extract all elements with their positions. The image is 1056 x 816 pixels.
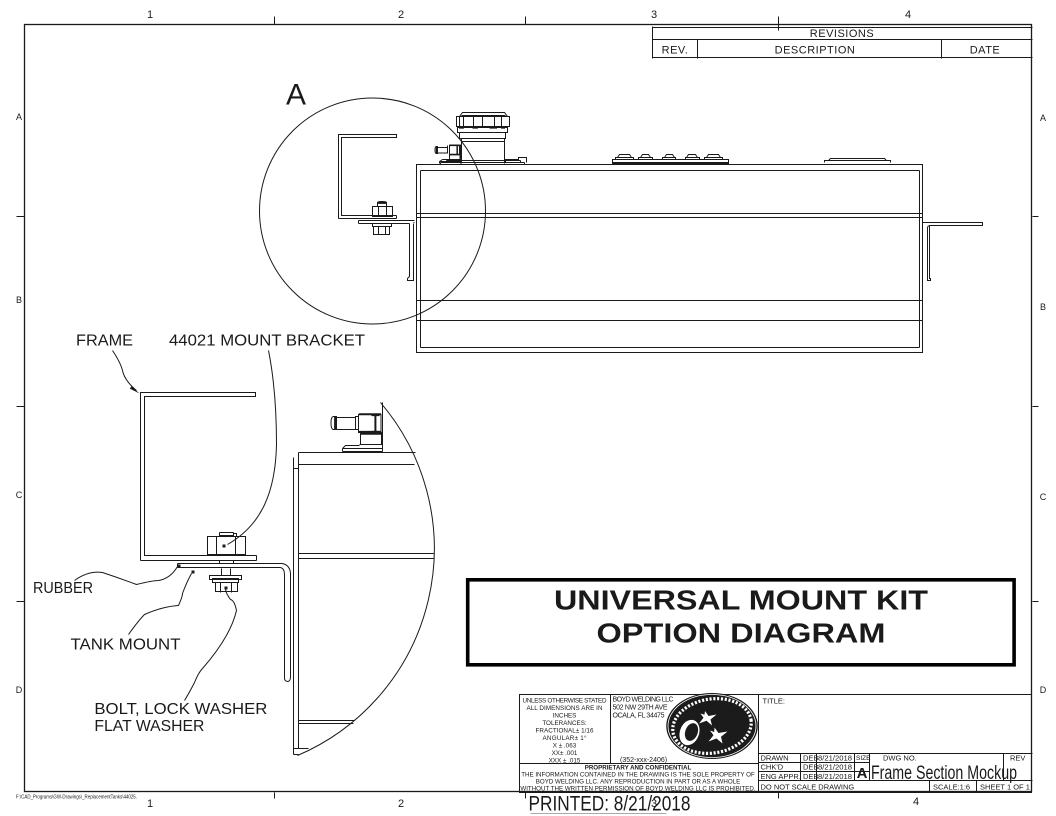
- svg-text:DESCRIPTION: DESCRIPTION: [775, 45, 856, 57]
- svg-text:B: B: [16, 295, 22, 305]
- svg-text:UNLESS OTHERWISE STATED: UNLESS OTHERWISE STATED: [523, 698, 607, 705]
- svg-text:A: A: [286, 79, 306, 112]
- svg-text:OCALA, FL 34475: OCALA, FL 34475: [613, 713, 665, 720]
- svg-text:DWG NO.: DWG NO.: [883, 754, 917, 763]
- svg-text:DATE: DATE: [970, 45, 1001, 57]
- svg-text:DRAWN: DRAWN: [761, 754, 789, 763]
- svg-text:OPTION DIAGRAM: OPTION DIAGRAM: [597, 618, 886, 649]
- svg-text:SCALE:1:6: SCALE:1:6: [933, 783, 970, 792]
- svg-text:BOLT, LOCK WASHER: BOLT, LOCK WASHER: [94, 701, 267, 718]
- svg-text:DEB: DEB: [803, 763, 818, 772]
- svg-text:XX± .001: XX± .001: [552, 750, 578, 757]
- svg-text:PROPRIETARY AND CONFIDENTIAL: PROPRIETARY AND CONFIDENTIAL: [585, 765, 692, 772]
- svg-text:Frame Section Mockup: Frame Section Mockup: [871, 763, 1017, 784]
- svg-text:2: 2: [398, 9, 404, 21]
- svg-text:DEB: DEB: [803, 754, 818, 763]
- svg-text:F:\CAD_Programs\GW-Drawings\_R: F:\CAD_Programs\GW-Drawings\_Replacement…: [16, 795, 137, 801]
- svg-text:8/21/2018: 8/21/2018: [818, 772, 852, 781]
- svg-text:44021 MOUNT BRACKET: 44021 MOUNT BRACKET: [169, 333, 366, 350]
- svg-text:C: C: [16, 490, 23, 500]
- svg-text:SHEET 1 OF 1: SHEET 1 OF 1: [980, 783, 1030, 792]
- svg-text:D: D: [16, 685, 23, 695]
- svg-text:A: A: [16, 112, 22, 122]
- svg-text:DEB: DEB: [803, 772, 818, 781]
- svg-text:3: 3: [651, 9, 657, 21]
- svg-text:REV: REV: [1010, 754, 1025, 763]
- svg-text:(352-xxx-2406): (352-xxx-2406): [620, 757, 667, 764]
- svg-text:502 NW 29TH AVE: 502 NW 29TH AVE: [613, 705, 668, 712]
- svg-text:DO NOT SCALE DRAWING: DO NOT SCALE DRAWING: [761, 783, 855, 792]
- svg-text:BOYD WELDING LLC. ANY REPRODUC: BOYD WELDING LLC. ANY REPRODUCTION IN PA…: [536, 779, 740, 786]
- svg-text:TANK MOUNT: TANK MOUNT: [71, 637, 182, 654]
- svg-text:8/21/2018: 8/21/2018: [818, 754, 852, 763]
- svg-text:XXX ± .015: XXX ± .015: [549, 758, 581, 765]
- svg-text:SIZE: SIZE: [856, 755, 871, 762]
- svg-text:FRACTIONAL± 1/16: FRACTIONAL± 1/16: [536, 728, 594, 735]
- svg-text:BOYD WELDING LLC: BOYD WELDING LLC: [613, 697, 674, 704]
- svg-text:FRAME: FRAME: [76, 333, 133, 350]
- svg-text:THE INFORMATION CONTAINED IN T: THE INFORMATION CONTAINED IN THE DRAWING…: [521, 772, 755, 779]
- svg-text:REVISIONS: REVISIONS: [810, 28, 874, 40]
- svg-text:8/21/2018: 8/21/2018: [818, 763, 852, 772]
- svg-text:INCHES: INCHES: [553, 713, 577, 720]
- svg-text:ALL DIMENSIONS ARE IN: ALL DIMENSIONS ARE IN: [527, 705, 603, 712]
- svg-text:PRINTED: 8/21/2018: PRINTED: 8/21/2018: [529, 792, 691, 816]
- svg-text:4: 4: [905, 9, 911, 21]
- svg-text:TITLE:: TITLE:: [763, 697, 786, 706]
- svg-text:A: A: [857, 765, 868, 782]
- svg-text:D: D: [1040, 685, 1047, 695]
- svg-text:X ± .063: X ± .063: [553, 743, 577, 750]
- svg-text:REV.: REV.: [662, 45, 689, 57]
- svg-text:1: 1: [147, 798, 153, 810]
- svg-text:CHK'D: CHK'D: [761, 763, 784, 772]
- svg-text:RUBBER: RUBBER: [33, 580, 93, 597]
- svg-text:C: C: [1040, 492, 1047, 502]
- svg-text:B: B: [1040, 302, 1046, 312]
- svg-text:1: 1: [147, 9, 153, 21]
- svg-text:4: 4: [913, 796, 919, 808]
- svg-text:FLAT WASHER: FLAT WASHER: [94, 718, 204, 735]
- svg-text:TOLERANCES:: TOLERANCES:: [542, 720, 587, 727]
- svg-text:ANGULAR± 1°: ANGULAR± 1°: [543, 734, 587, 742]
- svg-text:A: A: [1040, 113, 1046, 123]
- svg-text:2: 2: [398, 798, 404, 810]
- svg-text:UNIVERSAL MOUNT KIT: UNIVERSAL MOUNT KIT: [554, 585, 928, 616]
- svg-text:ENG APPR.: ENG APPR.: [761, 772, 801, 781]
